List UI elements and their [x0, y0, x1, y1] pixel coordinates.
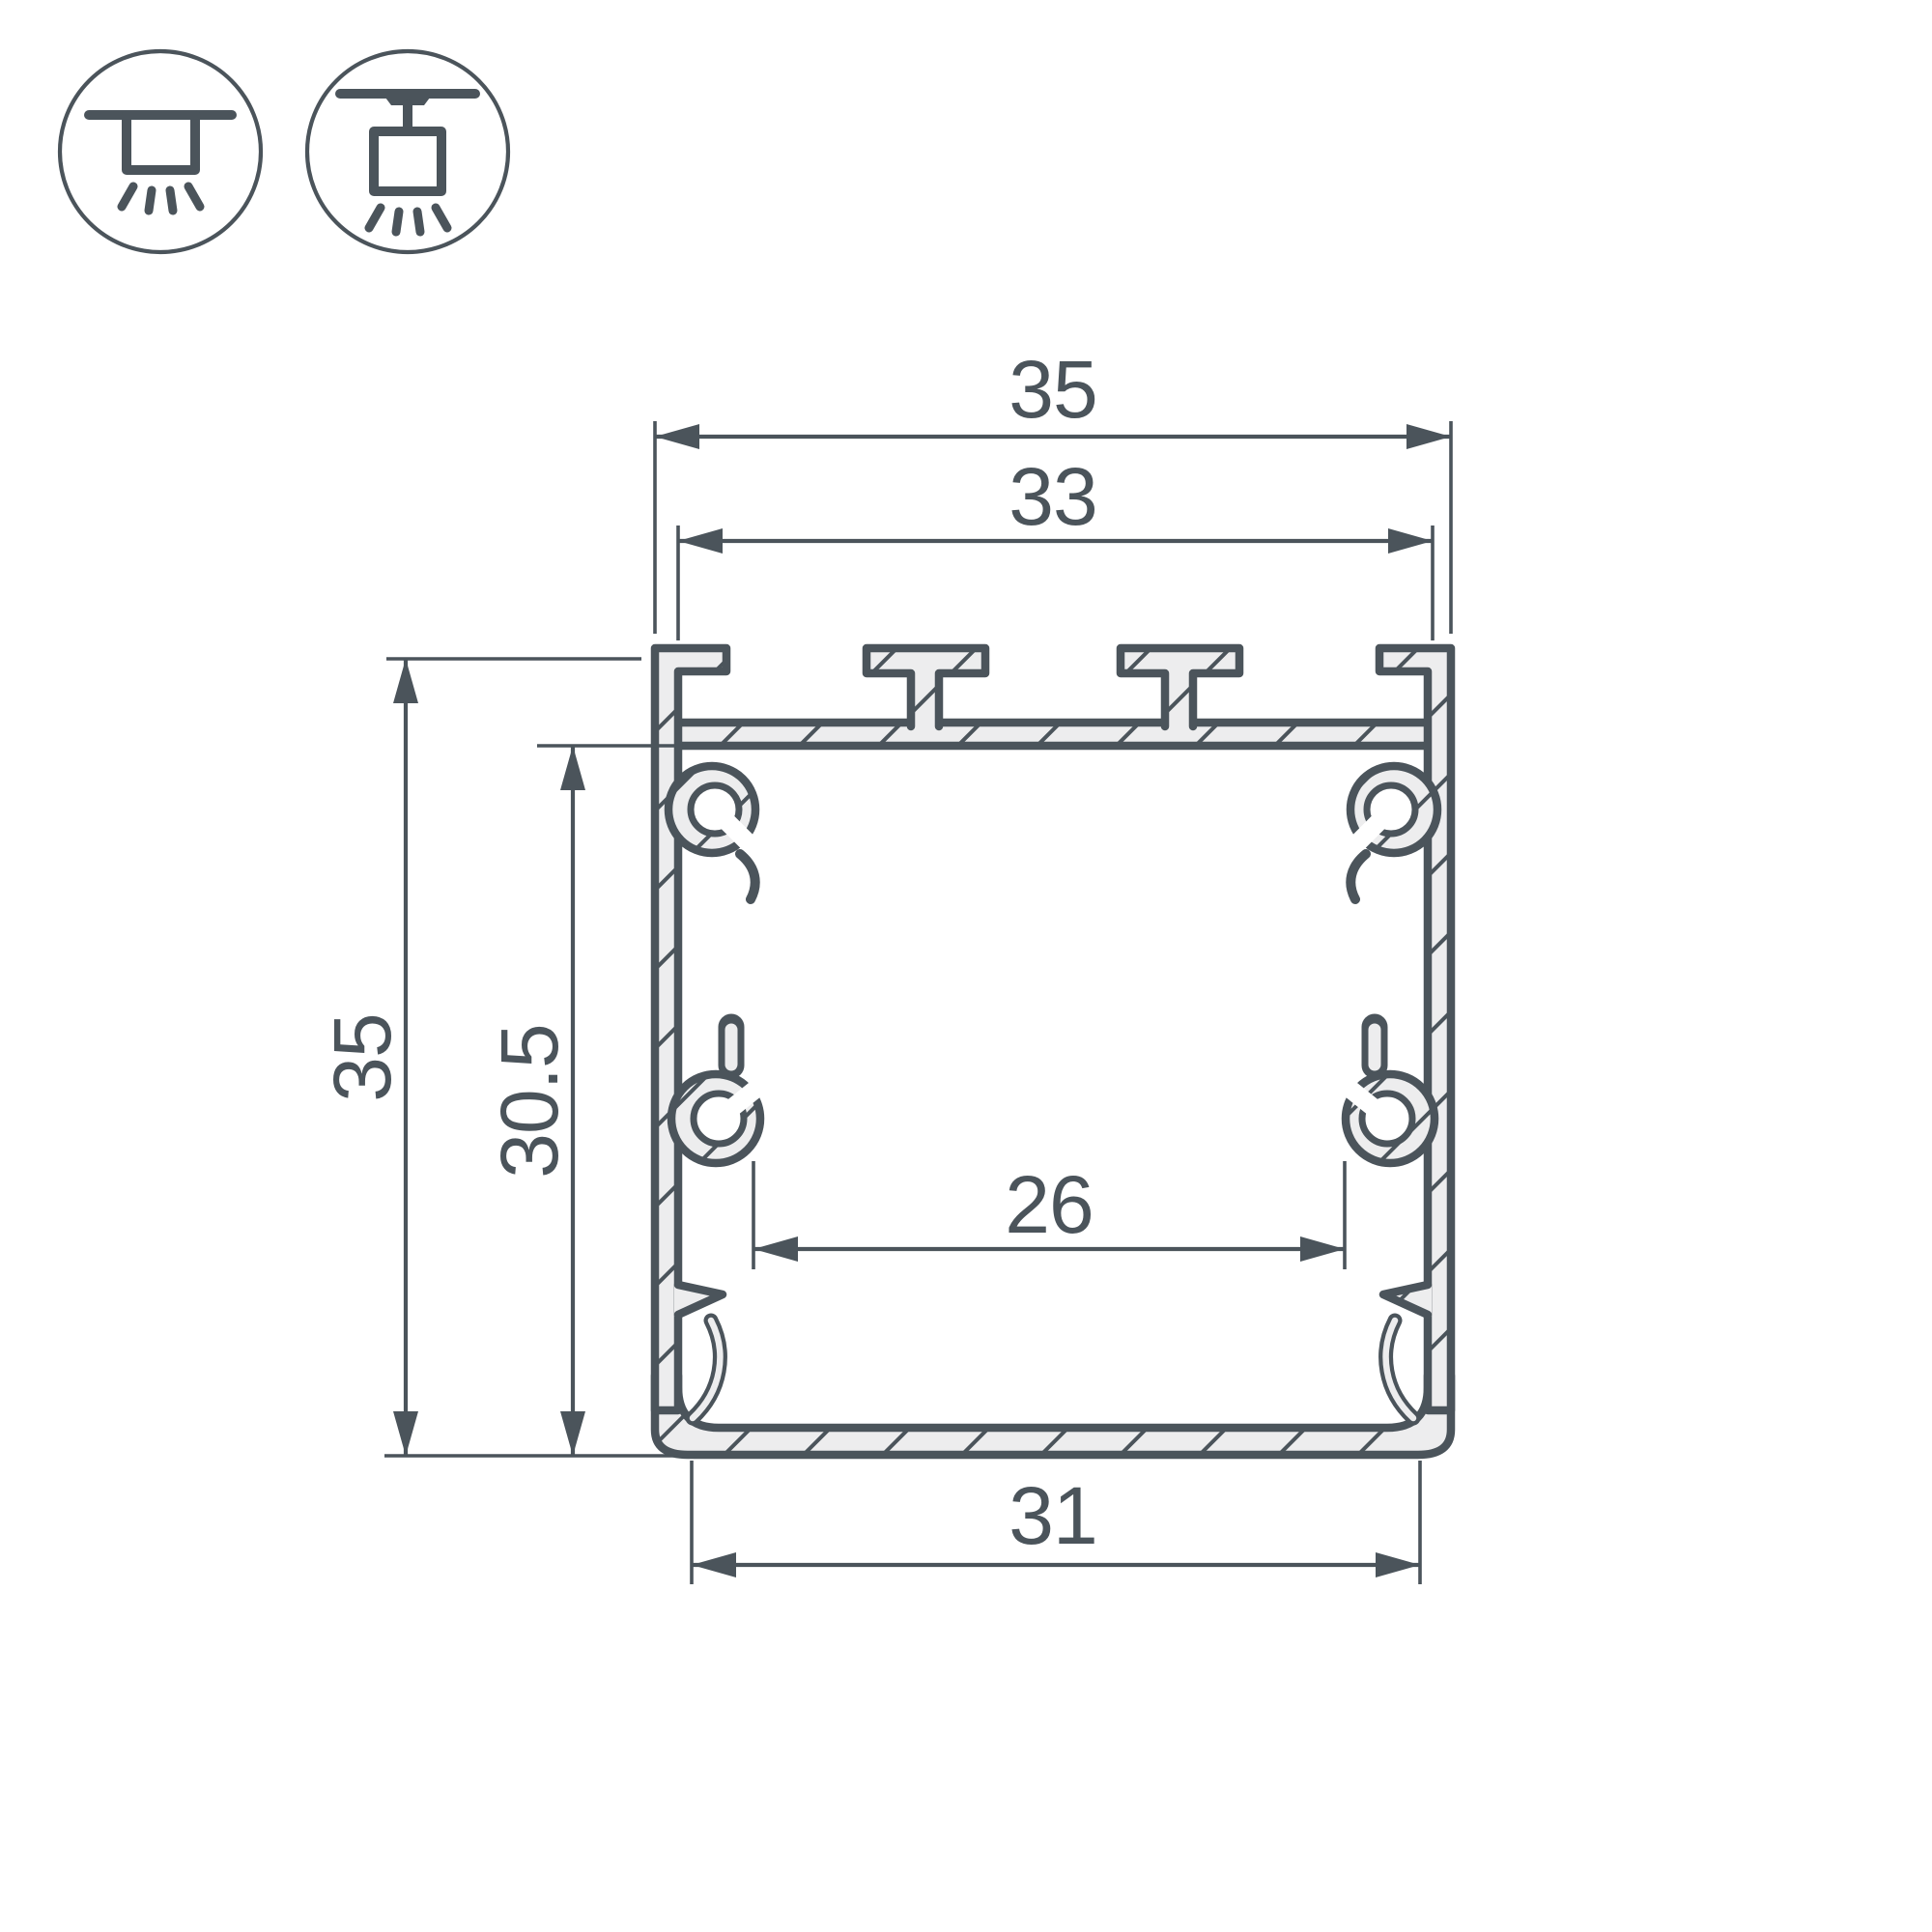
- light-ray: [149, 190, 152, 211]
- dim-outer-width-value: 35: [1009, 344, 1096, 435]
- dim-outer-height-value: 35: [317, 1013, 408, 1101]
- dim-bottom-width-value: 31: [1009, 1470, 1096, 1561]
- dim-inner-height-value: 30.5: [484, 1024, 575, 1179]
- light-ray: [396, 212, 399, 232]
- light-ray: [170, 190, 173, 211]
- dim-top-groove-span-value: 33: [1009, 451, 1096, 542]
- light-ray: [417, 212, 420, 232]
- dim-inner-width-value: 26: [1005, 1159, 1093, 1250]
- profile-cross-section-drawing: 35 33 35 30.5 26: [0, 0, 1932, 1932]
- drawing-page: 35 33 35 30.5 26: [0, 0, 1932, 1932]
- background: [0, 0, 1932, 1932]
